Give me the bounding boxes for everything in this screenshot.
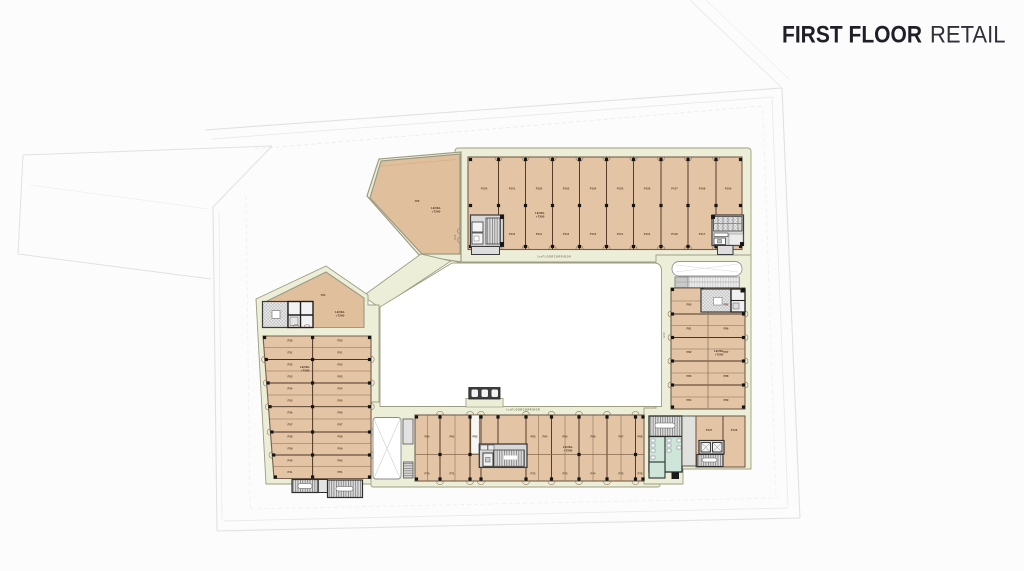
- svg-text:P86: P86: [724, 327, 729, 331]
- svg-text:P57: P57: [338, 423, 343, 427]
- svg-text:P84: P84: [687, 398, 692, 402]
- svg-text:+7300: +7300: [536, 215, 545, 219]
- svg-text:P81: P81: [687, 327, 692, 331]
- svg-text:P108: P108: [699, 187, 706, 191]
- svg-text:P31: P31: [288, 351, 293, 355]
- svg-text:P106: P106: [644, 187, 651, 191]
- svg-text:P88: P88: [724, 374, 729, 378]
- svg-text:P29: P29: [321, 293, 326, 297]
- svg-text:P112: P112: [563, 232, 570, 236]
- svg-text:P67: P67: [619, 435, 624, 439]
- svg-text:P109: P109: [725, 187, 732, 191]
- svg-text:P60: P60: [338, 459, 343, 463]
- svg-text:P66: P66: [591, 435, 596, 439]
- svg-text:P50: P50: [338, 339, 343, 343]
- svg-text:P75: P75: [619, 472, 624, 476]
- svg-text:P54: P54: [338, 387, 343, 391]
- svg-text:P35: P35: [288, 399, 293, 403]
- svg-text:P100: P100: [481, 187, 488, 191]
- svg-text:P52: P52: [338, 363, 343, 367]
- svg-text:P68: P68: [638, 435, 643, 439]
- svg-text:RETAIL: RETAIL: [930, 22, 1006, 49]
- svg-text:EV2: EV2: [453, 234, 457, 239]
- svg-text:P105: P105: [617, 187, 624, 191]
- svg-text:1 s t F L O O R C O R R I D: 1 s t F L O O R C O R R I D O R: [506, 409, 540, 412]
- svg-text:P128: P128: [731, 428, 738, 432]
- svg-text:P65: P65: [563, 435, 568, 439]
- svg-text:P104: P104: [590, 187, 597, 191]
- svg-text:P55: P55: [338, 399, 343, 403]
- svg-text:P83: P83: [687, 374, 692, 378]
- svg-text:P107: P107: [671, 187, 678, 191]
- svg-text:P127: P127: [706, 428, 713, 432]
- svg-text:P32: P32: [288, 363, 293, 367]
- svg-text:P113: P113: [590, 232, 597, 236]
- svg-text:P36: P36: [288, 411, 293, 415]
- svg-text:P117: P117: [699, 232, 706, 236]
- svg-text:P56: P56: [338, 411, 343, 415]
- svg-text:P40: P40: [288, 459, 293, 463]
- svg-text:P41: P41: [288, 470, 293, 474]
- svg-text:P85: P85: [724, 303, 729, 307]
- svg-text:P34: P34: [288, 387, 293, 391]
- svg-text:+7300: +7300: [432, 210, 441, 214]
- svg-text:EV3: EV3: [662, 332, 666, 337]
- svg-text:1 s t F L O O R C O R R I D: 1 s t F L O O R C O R R I D O R: [537, 256, 571, 259]
- svg-text:+7300: +7300: [301, 369, 310, 373]
- svg-text:P101: P101: [509, 187, 516, 191]
- svg-text:P53: P53: [338, 375, 343, 379]
- svg-text:P38: P38: [288, 435, 293, 439]
- svg-text:P87: P87: [724, 350, 729, 354]
- svg-text:P61: P61: [450, 435, 455, 439]
- svg-text:P74: P74: [591, 472, 596, 476]
- svg-text:P62: P62: [473, 435, 478, 439]
- svg-text:P37: P37: [288, 423, 293, 427]
- svg-text:P28: P28: [415, 199, 420, 203]
- svg-text:P71: P71: [450, 472, 455, 476]
- svg-text:P76: P76: [638, 472, 643, 476]
- svg-text:P80: P80: [687, 303, 692, 307]
- svg-text:P59: P59: [338, 447, 343, 451]
- svg-text:P116: P116: [671, 232, 678, 236]
- svg-text:P73: P73: [563, 472, 568, 476]
- svg-text:P60: P60: [425, 435, 430, 439]
- svg-text:FIRST FLOOR: FIRST FLOOR: [782, 22, 922, 49]
- svg-text:P89: P89: [724, 398, 729, 402]
- svg-text:P114: P114: [617, 232, 624, 236]
- svg-text:P64: P64: [543, 435, 548, 439]
- svg-text:P111: P111: [536, 232, 543, 236]
- svg-text:P70: P70: [425, 472, 430, 476]
- svg-text:+7300: +7300: [564, 449, 573, 453]
- svg-text:P115: P115: [644, 232, 651, 236]
- svg-text:P30: P30: [288, 339, 293, 343]
- svg-text:P39: P39: [288, 447, 293, 451]
- svg-text:P72: P72: [531, 472, 536, 476]
- svg-text:P61: P61: [338, 470, 343, 474]
- svg-text:P110: P110: [509, 232, 516, 236]
- svg-text:P51: P51: [338, 351, 343, 355]
- svg-text:P102: P102: [536, 187, 543, 191]
- svg-text:+7200: +7200: [715, 353, 724, 357]
- svg-text:P58: P58: [338, 435, 343, 439]
- svg-text:+7300: +7300: [336, 314, 345, 318]
- svg-text:P103: P103: [563, 187, 570, 191]
- svg-text:P33: P33: [288, 375, 293, 379]
- svg-text:P63: P63: [531, 435, 536, 439]
- svg-text:P82: P82: [687, 350, 692, 354]
